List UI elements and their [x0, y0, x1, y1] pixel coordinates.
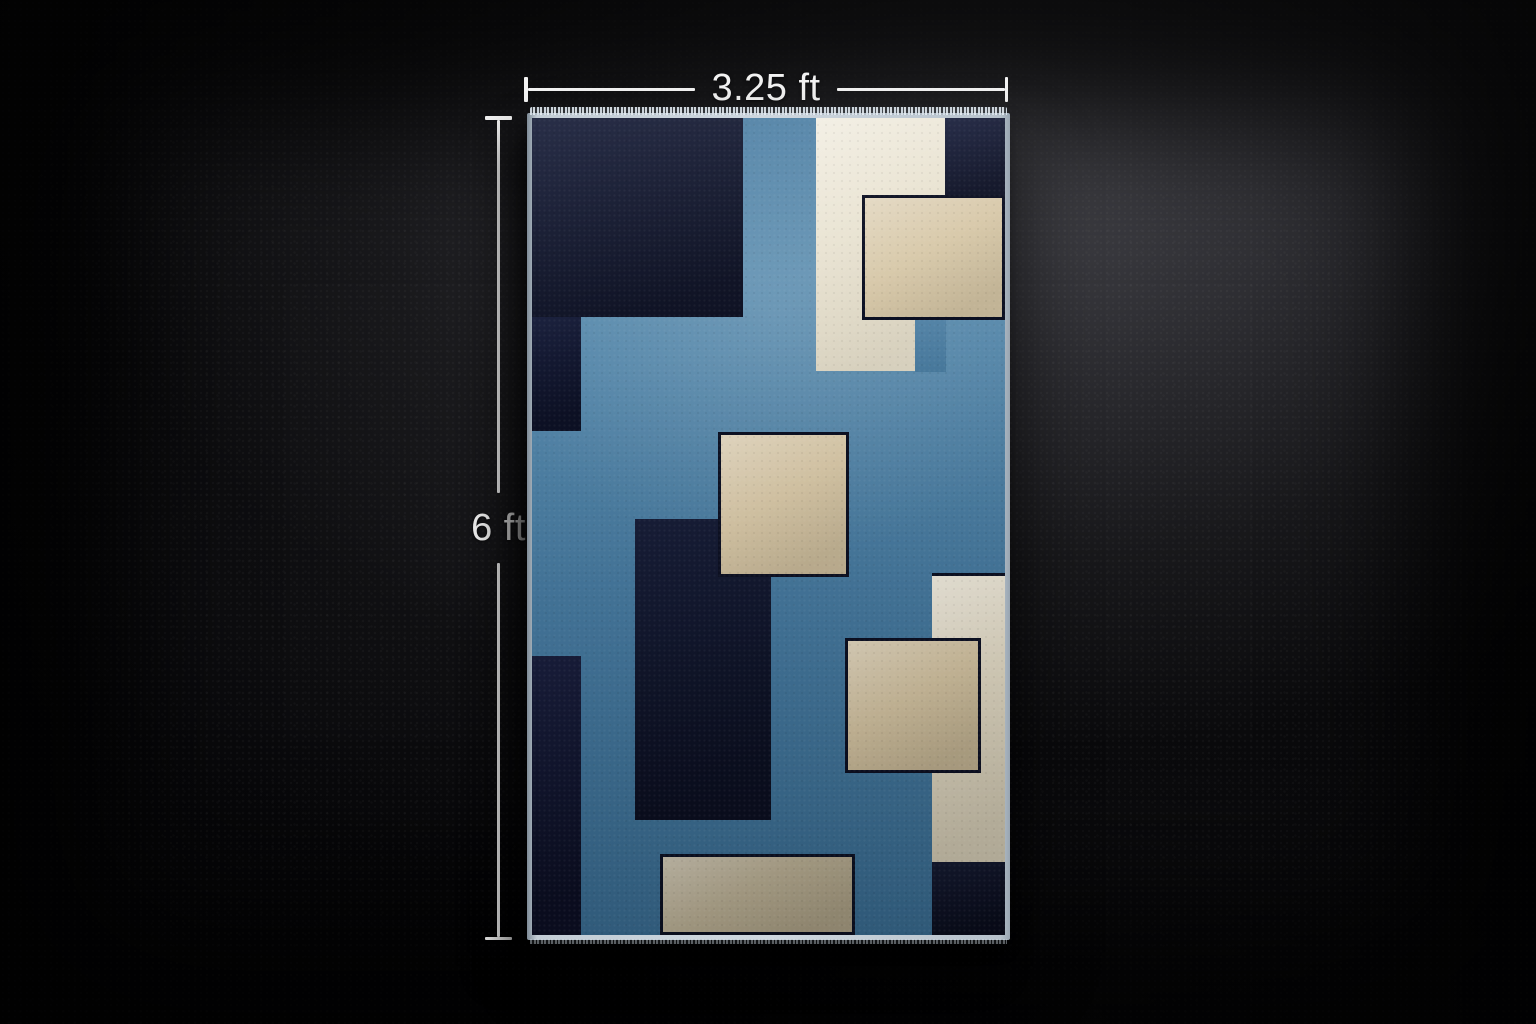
field-notch — [915, 320, 946, 372]
navy-left-lower-strip — [532, 656, 581, 935]
beige-bottom-rect — [660, 854, 855, 935]
width-dimension-tick-right — [1005, 77, 1009, 102]
width-dimension-tick-left — [524, 77, 528, 102]
navy-left-upper-strip — [532, 317, 581, 431]
width-dimension: 3.25 ft — [524, 77, 1008, 102]
rug-photo — [527, 113, 1010, 940]
scene: 3.25 ft 6 ft — [0, 0, 1536, 1024]
beige-right-block — [845, 638, 981, 773]
rug-blocks — [532, 118, 1005, 935]
beige-center-square — [718, 432, 849, 577]
navy-top-right-block — [945, 118, 1005, 196]
height-dimension-line-bottom — [497, 563, 501, 937]
height-dimension-tick-bottom — [485, 937, 512, 941]
rug-fringe-top — [530, 107, 1007, 115]
height-dimension-label: 6 ft — [471, 493, 526, 563]
navy-top-left-block — [532, 118, 743, 317]
width-dimension-line-right — [837, 88, 1005, 92]
height-dimension-tick-top — [485, 116, 512, 120]
rug-field — [532, 118, 1005, 935]
height-dimension: 6 ft — [485, 116, 512, 940]
navy-bottom-right-block — [932, 862, 1005, 935]
rug-fringe-bottom — [530, 939, 1007, 944]
beige-top-right-block — [862, 195, 1005, 320]
width-dimension-line-left — [528, 88, 696, 92]
height-dimension-line-top — [497, 120, 501, 494]
width-dimension-label: 3.25 ft — [695, 69, 836, 107]
